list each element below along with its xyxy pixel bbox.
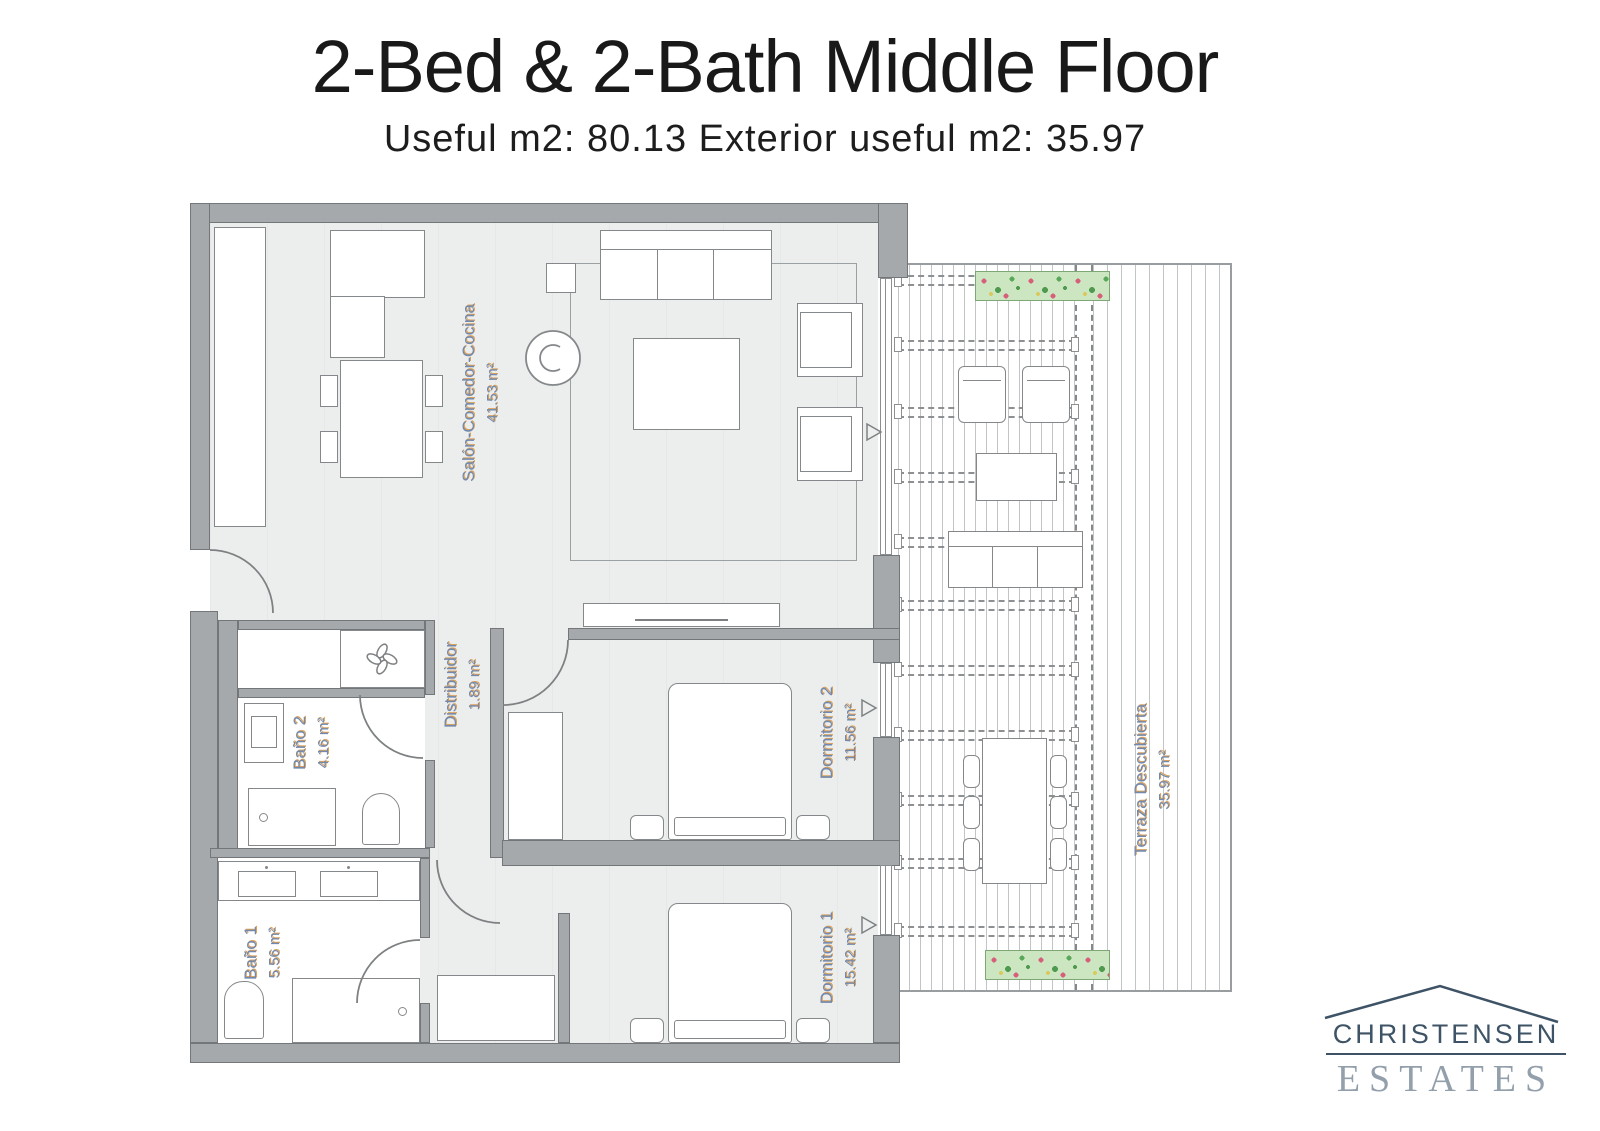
room-name: Dormitorio 1 <box>815 912 840 1005</box>
room-area: 5.56 m² <box>263 926 285 980</box>
page-subtitle: Useful m2: 80.13 Exterior useful m2: 35.… <box>0 118 1530 161</box>
room-label-terraza: Terraza Descubierta 35.97 m² <box>1129 704 1175 856</box>
bathroom2-door-arc <box>360 695 423 758</box>
room-name: Salón-Comedor-Cocina <box>457 304 482 482</box>
room-name: Dormitorio 2 <box>815 687 840 780</box>
opening-direction-icon <box>862 917 876 933</box>
page-title: 2-Bed & 2-Bath Middle Floor <box>0 28 1530 106</box>
bedroom1-door-arc <box>437 860 500 923</box>
room-label-bano2: Baño 2 4.16 m² <box>288 716 334 770</box>
room-area: 4.16 m² <box>312 716 334 770</box>
brand-divider <box>1326 1053 1566 1055</box>
brand-logo: CHRISTENSEN ESTATES <box>1322 973 1570 1101</box>
brand-type: ESTATES <box>1322 1057 1570 1101</box>
room-area: 1.89 m² <box>463 642 485 728</box>
room-area: 41.53 m² <box>481 304 503 482</box>
bedroom2-door-arc <box>503 640 568 705</box>
header: 2-Bed & 2-Bath Middle Floor Useful m2: 8… <box>0 28 1530 161</box>
room-name: Baño 1 <box>239 926 264 980</box>
room-name: Terraza Descubierta <box>1129 704 1154 856</box>
entrance-door-arc <box>210 550 273 613</box>
bathroom1-door-arc <box>357 940 420 1003</box>
room-label-bano1: Baño 1 5.56 m² <box>239 926 285 980</box>
room-name: Baño 2 <box>288 716 313 770</box>
room-label-dormitorio2: Dormitorio 2 11.56 m² <box>815 687 861 780</box>
opening-direction-icon <box>867 424 881 440</box>
fan-icon <box>366 643 399 676</box>
room-area: 35.97 m² <box>1153 704 1175 856</box>
room-name: Distribuidor <box>439 642 464 728</box>
room-label-salon: Salón-Comedor-Cocina 41.53 m² <box>457 304 503 482</box>
room-area: 15.42 m² <box>839 912 861 1005</box>
plan-symbols-layer <box>190 203 1232 1063</box>
roof-icon <box>1322 973 1570 1025</box>
room-area: 11.56 m² <box>839 687 861 780</box>
opening-direction-icon <box>862 700 876 716</box>
floor-plan: Salón-Comedor-Cocina 41.53 m² Distribuid… <box>190 203 1232 1063</box>
floor-lamp <box>526 331 580 385</box>
floorplan-page: 2-Bed & 2-Bath Middle Floor Useful m2: 8… <box>0 0 1600 1131</box>
room-label-distribuidor: Distribuidor 1.89 m² <box>439 642 485 728</box>
room-label-dormitorio1: Dormitorio 1 15.42 m² <box>815 912 861 1005</box>
